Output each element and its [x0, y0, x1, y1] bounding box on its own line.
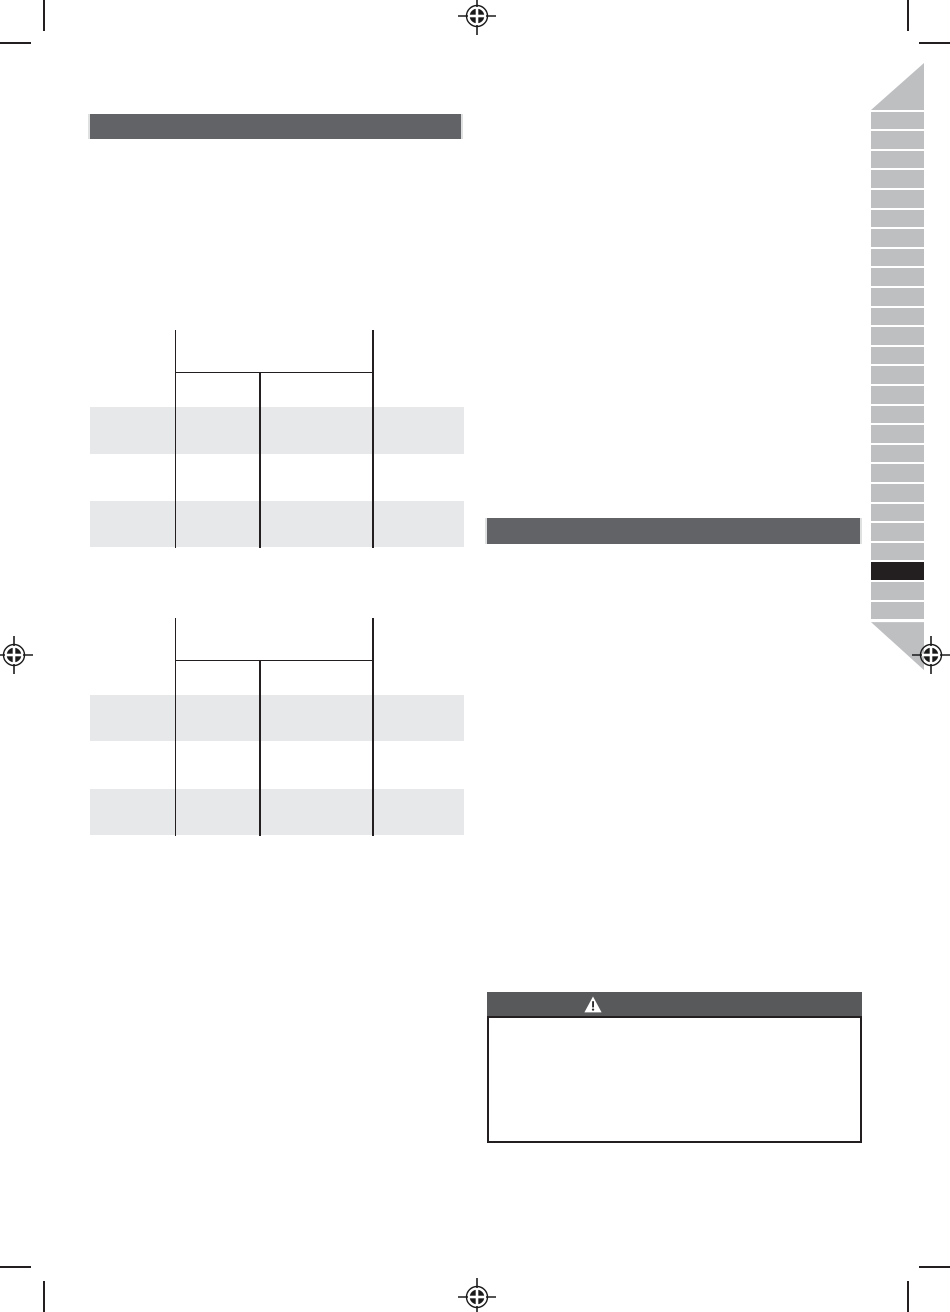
index-tab: [871, 406, 924, 424]
index-tab: [871, 151, 924, 169]
index-tab: [871, 347, 924, 365]
tab-strip: [871, 63, 924, 670]
crop-mark-top-left-v: [43, 0, 45, 31]
crop-mark-bottom-right-v: [907, 1281, 909, 1312]
registration-mark-top: [457, 0, 497, 36]
warning-triangle-icon: [584, 996, 602, 1013]
index-tab: [871, 210, 924, 228]
registration-mark-left: [0, 635, 34, 675]
table-row-stripe: [90, 789, 464, 836]
section-header-bar-left: [88, 114, 463, 139]
table-rule: [175, 618, 177, 836]
crop-mark-top-right-v: [907, 0, 909, 31]
crop-mark-bottom-right-h: [919, 1266, 950, 1268]
index-tab: [871, 543, 924, 561]
index-tab: [871, 582, 924, 600]
table-rule: [175, 660, 374, 662]
index-tab: [871, 190, 924, 208]
index-tab: [871, 308, 924, 326]
tab-strip-tabs: [871, 112, 924, 619]
index-tab: [871, 268, 924, 286]
crop-mark-top-right-h: [919, 42, 950, 44]
table-rule: [259, 660, 261, 836]
index-tab: [871, 386, 924, 404]
warning-header-bar: [487, 992, 862, 1016]
table-rule: [259, 372, 261, 548]
registration-mark-bottom: [457, 1277, 497, 1312]
index-tab: [871, 170, 924, 188]
table-rule: [175, 372, 374, 374]
index-tab: [871, 131, 924, 149]
index-tab: [871, 229, 924, 247]
index-tab: [871, 445, 924, 463]
crop-mark-bottom-left-h: [0, 1266, 31, 1268]
index-tab: [871, 504, 924, 522]
crop-mark-top-left-h: [0, 42, 31, 44]
table-rule: [372, 618, 374, 836]
registration-mark-right: [911, 635, 950, 675]
index-tab: [871, 602, 924, 620]
index-tab-active: [871, 562, 924, 580]
table-row-stripe: [90, 695, 464, 742]
section-header-bar-right: [485, 518, 862, 544]
index-tab: [871, 484, 924, 502]
index-tab: [871, 425, 924, 443]
warning-body: [487, 1016, 862, 1144]
index-tab: [871, 288, 924, 306]
table-row-stripe: [90, 407, 464, 454]
index-tab: [871, 327, 924, 345]
index-tab: [871, 523, 924, 541]
index-tab: [871, 249, 924, 267]
table-rule: [372, 330, 374, 548]
crop-mark-bottom-left-v: [43, 1281, 45, 1312]
table-row-stripe: [90, 501, 464, 548]
index-tab: [871, 112, 924, 130]
table-rule: [175, 330, 177, 548]
index-tab: [871, 464, 924, 482]
warning-box: [487, 992, 862, 1143]
manual-page: [0, 0, 950, 1312]
tab-strip-top-taper: [871, 63, 924, 110]
index-tab: [871, 366, 924, 384]
